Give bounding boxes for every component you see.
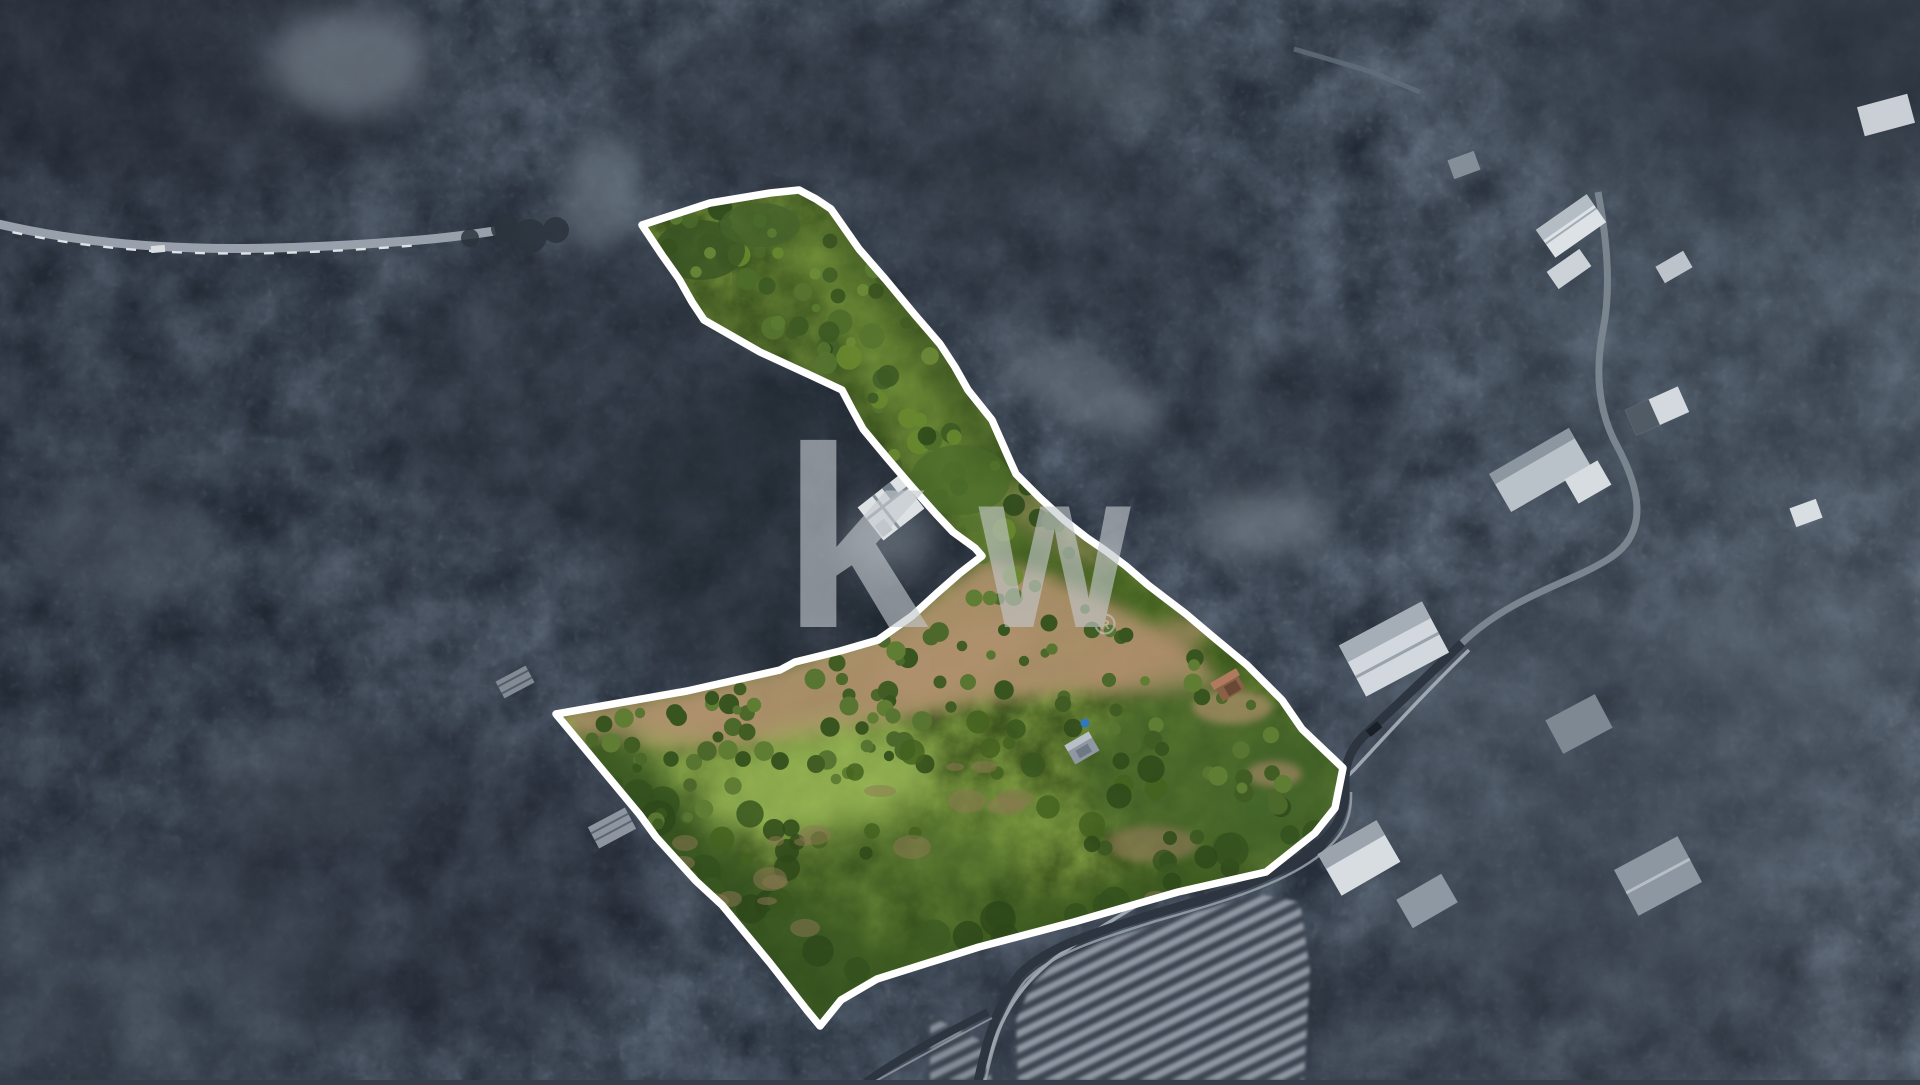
svg-text:w: w	[978, 421, 1131, 676]
svg-text:R: R	[1100, 617, 1110, 632]
svg-text:k: k	[782, 394, 930, 683]
